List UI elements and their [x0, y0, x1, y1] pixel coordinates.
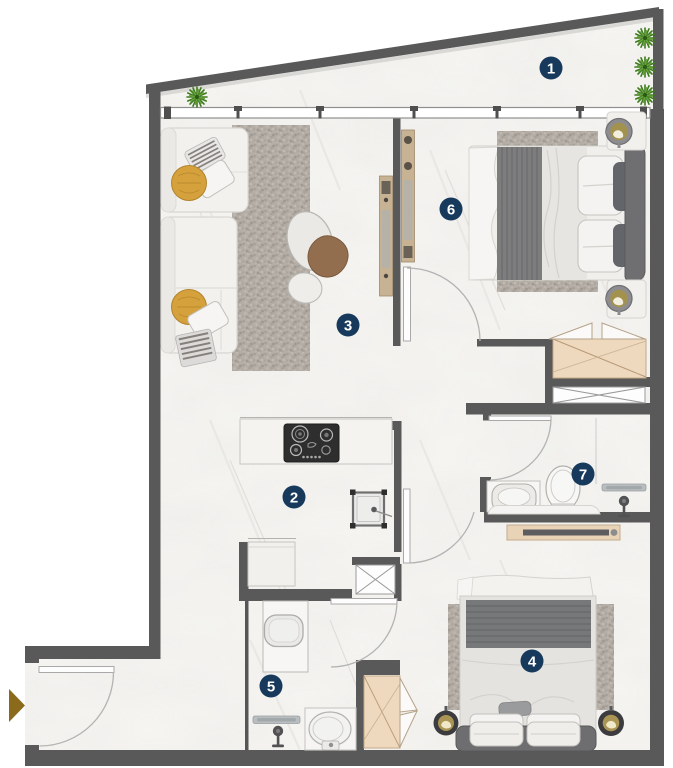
svg-text:6: 6 [447, 202, 455, 219]
svg-text:1: 1 [547, 61, 555, 78]
svg-text:2: 2 [290, 490, 298, 507]
svg-text:7: 7 [579, 467, 587, 484]
svg-text:4: 4 [528, 654, 537, 671]
svg-text:5: 5 [267, 679, 275, 696]
svg-text:3: 3 [344, 318, 352, 335]
